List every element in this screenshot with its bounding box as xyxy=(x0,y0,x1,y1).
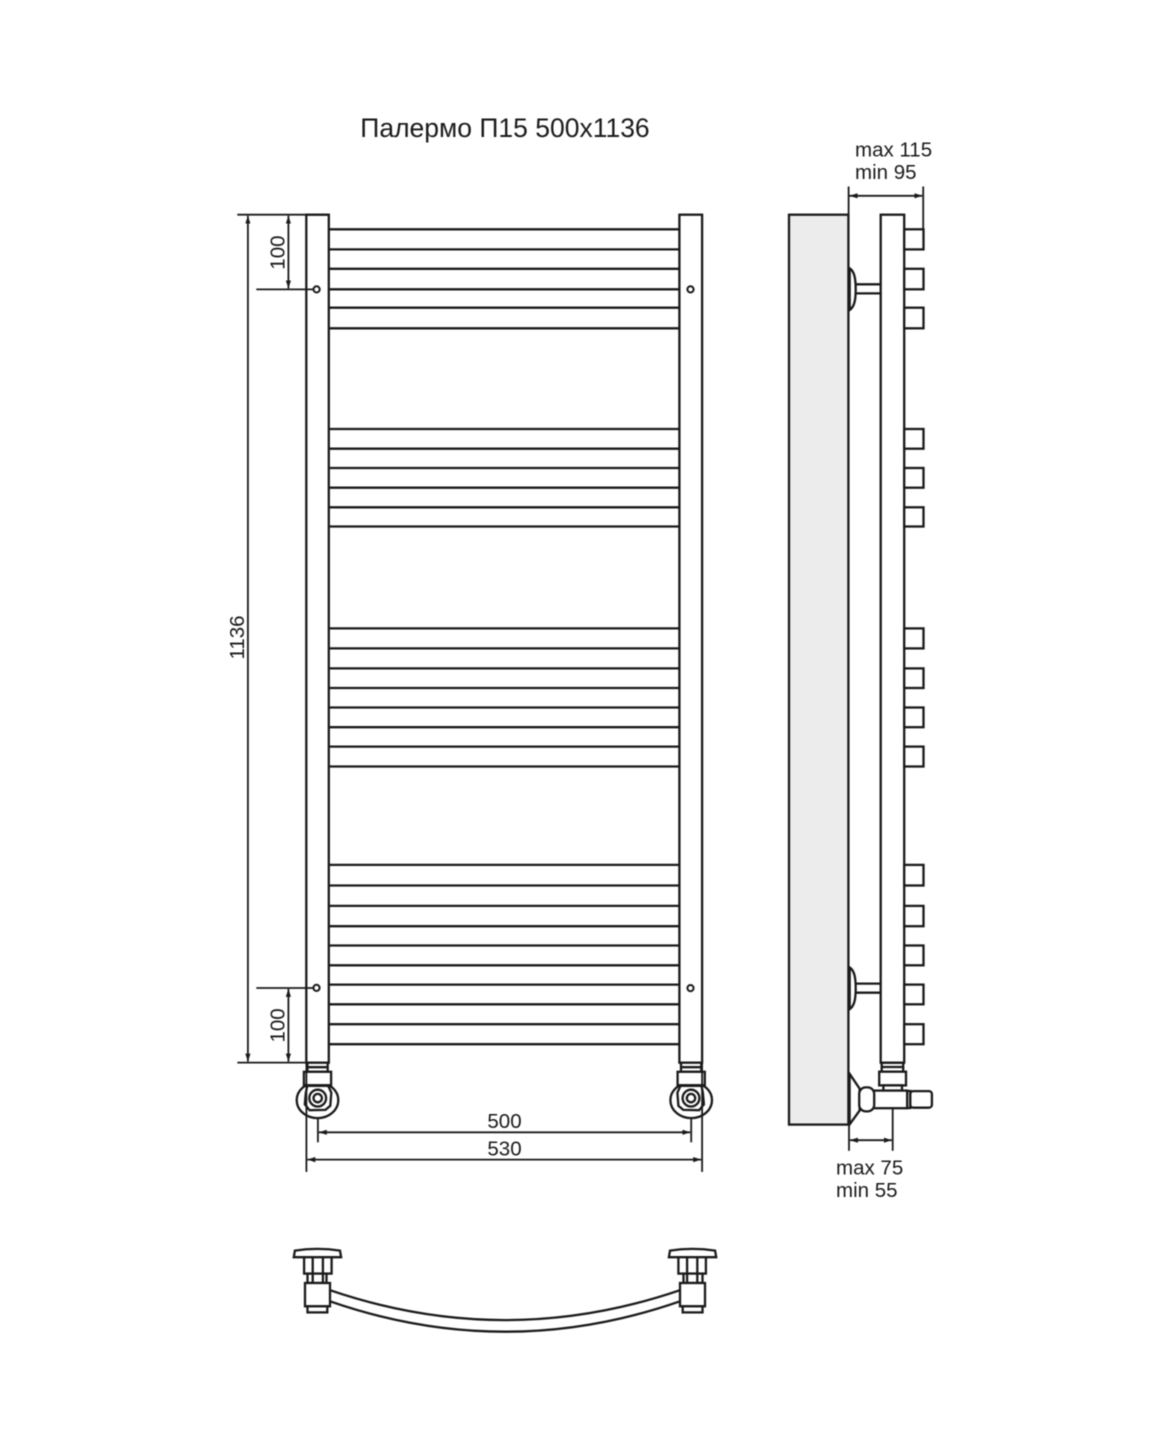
svg-text:min 95: min 95 xyxy=(855,161,917,184)
svg-text:100: 100 xyxy=(267,235,290,269)
svg-text:500: 500 xyxy=(487,1110,521,1133)
svg-text:1136: 1136 xyxy=(226,615,249,659)
svg-text:max 75: max 75 xyxy=(836,1157,903,1180)
svg-text:Палермо П15 500х1136: Палермо П15 500х1136 xyxy=(360,113,649,143)
svg-text:100: 100 xyxy=(267,1008,290,1042)
svg-text:530: 530 xyxy=(487,1137,521,1160)
svg-text:min 55: min 55 xyxy=(836,1179,898,1202)
svg-text:max 115: max 115 xyxy=(855,138,932,161)
